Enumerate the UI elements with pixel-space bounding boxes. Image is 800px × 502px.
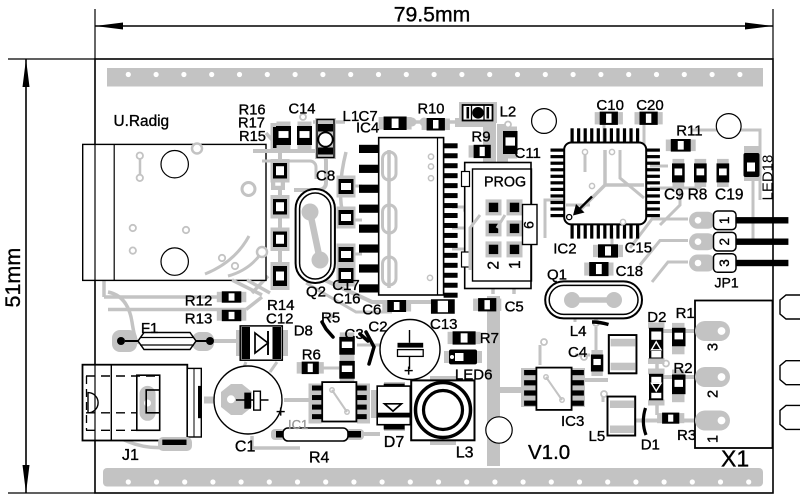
svg-text:L5: L5 bbox=[589, 428, 606, 445]
svg-text:C16: C16 bbox=[333, 291, 361, 308]
svg-text:C8: C8 bbox=[316, 168, 335, 185]
svg-text:1: 1 bbox=[507, 260, 524, 269]
svg-text:D2: D2 bbox=[647, 309, 666, 326]
svg-text:R8: R8 bbox=[688, 187, 708, 204]
svg-text:6: 6 bbox=[521, 221, 537, 229]
svg-text:X1: X1 bbox=[721, 446, 749, 472]
svg-text:D8: D8 bbox=[294, 323, 313, 340]
svg-text:R12: R12 bbox=[185, 293, 213, 310]
svg-text:R9: R9 bbox=[471, 129, 490, 146]
svg-text:R3: R3 bbox=[677, 427, 696, 444]
svg-text:R2: R2 bbox=[673, 360, 692, 377]
svg-text:L4: L4 bbox=[570, 323, 587, 340]
svg-text:+: + bbox=[276, 404, 285, 421]
svg-text:C2: C2 bbox=[368, 319, 387, 336]
svg-text:IC4: IC4 bbox=[356, 120, 379, 137]
svg-text:R4: R4 bbox=[309, 450, 330, 467]
svg-text:+: + bbox=[404, 363, 413, 380]
svg-text:Q2: Q2 bbox=[306, 284, 326, 301]
svg-text:V1.0: V1.0 bbox=[528, 441, 570, 464]
svg-text:R10: R10 bbox=[418, 102, 445, 118]
svg-text:R6: R6 bbox=[302, 347, 321, 364]
svg-text:C13: C13 bbox=[430, 316, 458, 333]
svg-text:C18: C18 bbox=[616, 263, 644, 280]
svg-text:LED18: LED18 bbox=[760, 155, 777, 201]
svg-text:C12: C12 bbox=[266, 311, 294, 328]
svg-text:C1: C1 bbox=[235, 439, 256, 456]
svg-text:R1: R1 bbox=[676, 305, 695, 322]
svg-text:F1: F1 bbox=[141, 320, 159, 337]
svg-text:3: 3 bbox=[717, 259, 732, 267]
svg-text:C15: C15 bbox=[625, 240, 653, 257]
svg-text:C19: C19 bbox=[715, 187, 743, 204]
svg-text:D1: D1 bbox=[641, 437, 660, 454]
svg-text:C20: C20 bbox=[636, 97, 664, 114]
svg-text:IC2: IC2 bbox=[553, 241, 576, 258]
svg-text:C5: C5 bbox=[505, 298, 524, 315]
svg-text:IC1: IC1 bbox=[288, 417, 308, 432]
svg-text:1: 1 bbox=[717, 217, 732, 225]
svg-text:Q1: Q1 bbox=[547, 267, 567, 284]
svg-text:J1: J1 bbox=[122, 447, 139, 464]
svg-text:R11: R11 bbox=[676, 122, 702, 139]
svg-text:IC3: IC3 bbox=[561, 413, 584, 430]
svg-text:U.Radig: U.Radig bbox=[114, 113, 170, 130]
svg-text:2: 2 bbox=[717, 238, 732, 246]
svg-text:C4: C4 bbox=[568, 344, 587, 361]
svg-text:D7: D7 bbox=[384, 434, 405, 451]
svg-text:LED6: LED6 bbox=[455, 366, 493, 383]
svg-text:R15: R15 bbox=[239, 129, 266, 145]
svg-text:C14: C14 bbox=[289, 102, 316, 118]
svg-text:C6: C6 bbox=[362, 302, 381, 319]
svg-text:51mm: 51mm bbox=[1, 248, 25, 308]
svg-text:R13: R13 bbox=[185, 311, 213, 328]
svg-text:C11: C11 bbox=[515, 145, 541, 162]
svg-text:JP1: JP1 bbox=[715, 274, 739, 290]
svg-text:C3: C3 bbox=[345, 326, 364, 343]
svg-text:3: 3 bbox=[706, 343, 722, 351]
svg-text:79.5mm: 79.5mm bbox=[394, 4, 471, 27]
svg-text:1: 1 bbox=[706, 435, 722, 443]
svg-text:PROG: PROG bbox=[484, 175, 526, 191]
svg-text:2: 2 bbox=[706, 390, 722, 398]
svg-text:2: 2 bbox=[485, 261, 502, 270]
svg-text:C9: C9 bbox=[664, 187, 684, 204]
svg-text:R5: R5 bbox=[321, 309, 340, 326]
svg-text:L3: L3 bbox=[456, 444, 474, 461]
svg-text:L2: L2 bbox=[500, 104, 517, 121]
svg-text:R7: R7 bbox=[480, 330, 499, 347]
svg-text:C10: C10 bbox=[596, 97, 624, 114]
